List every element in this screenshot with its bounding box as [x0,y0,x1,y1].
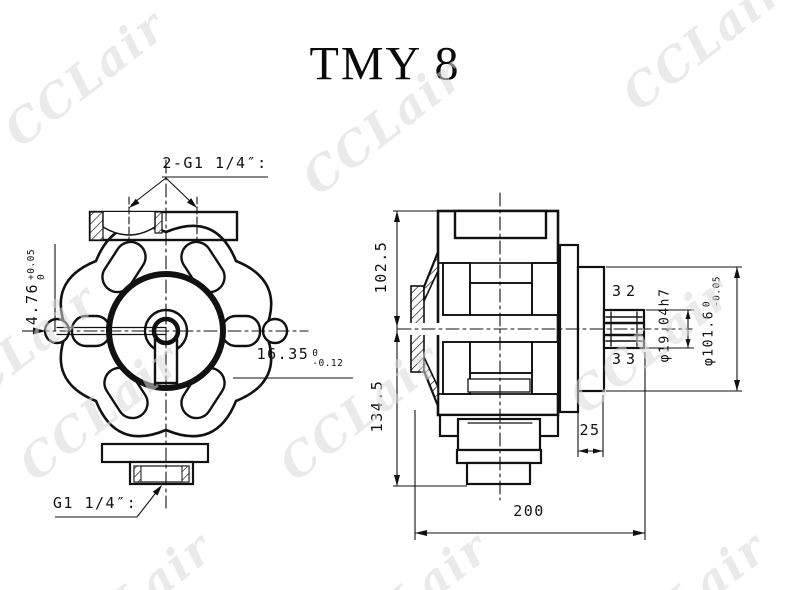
dim-pilot-diameter: φ101.60-0.05 [702,276,723,366]
dim-overall-length: 200 [513,502,545,520]
front-view [36,160,308,508]
dim-keyway-depth-value: 16.35 [257,345,310,363]
dim-pilot-diameter-tol-lower: -0.05 [713,276,723,307]
dim-height-upper: 102.5 [372,241,390,294]
top-ports-label: 2-G1 1/4″: [162,154,267,172]
engineering-drawing-page: TMY 8 [0,0,800,590]
dim-height-lower: 134.5 [368,380,386,433]
drawing-title: TMY 8 [310,37,461,92]
dim-shaft-diameter: φ19.04h7 [658,288,673,363]
side-view [398,193,692,500]
bottom-port-label: G1 1/4″: [53,494,137,512]
dim-keyway-width: 4.76+0.050 [23,249,47,325]
dim-pilot-diameter-value: φ101.6 [702,310,717,366]
dim-spline-lower: 33 [612,350,640,368]
dim-keyway-width-value: 4.76 [23,283,41,325]
dim-keyway-width-tol-lower: 0 [37,249,47,280]
dim-keyway-depth: 16.350-0.12 [257,345,344,369]
dim-flange-width: 25 [579,421,600,439]
dim-keyway-depth-tol-lower: -0.12 [312,359,343,369]
dim-spline-upper: 32 [612,282,640,300]
